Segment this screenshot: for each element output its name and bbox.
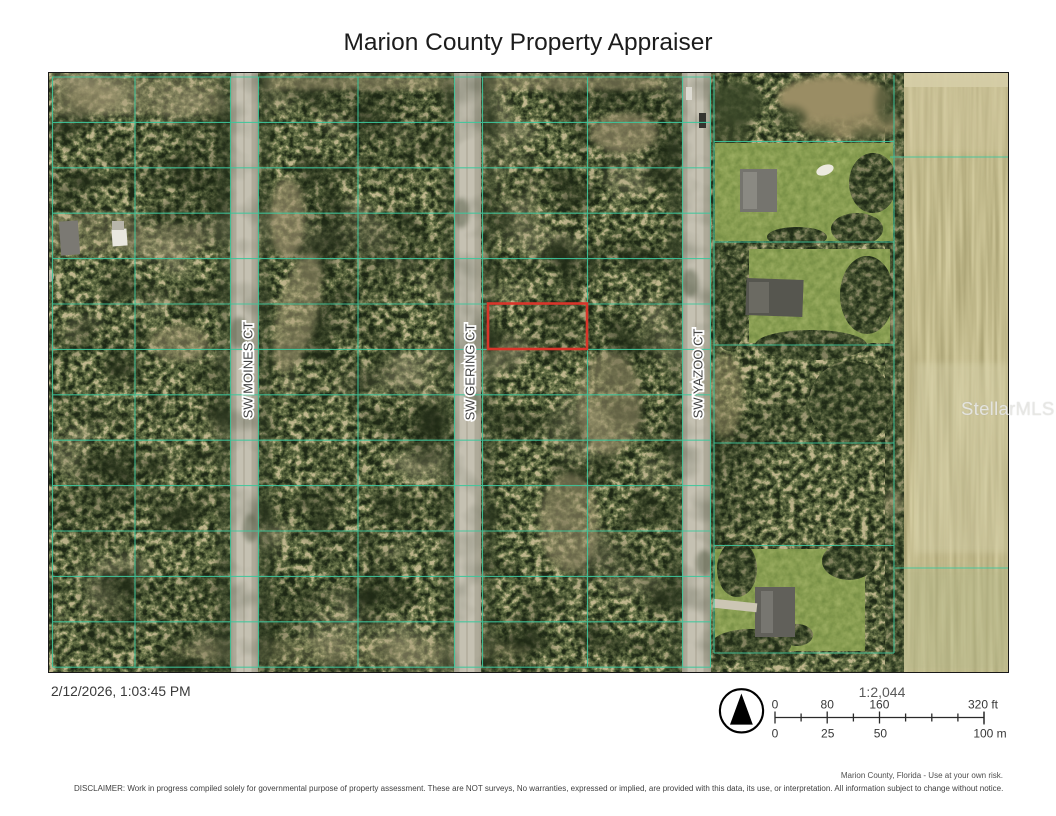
svg-text:80: 80 [821, 698, 835, 712]
svg-text:25: 25 [821, 727, 835, 741]
svg-text:320 ft: 320 ft [968, 698, 999, 712]
svg-text:SW YAZOO CT: SW YAZOO CT [691, 329, 706, 419]
svg-text:SW GERING CT: SW GERING CT [463, 324, 478, 421]
svg-text:160: 160 [869, 698, 889, 712]
svg-text:0: 0 [772, 727, 779, 741]
svg-text:SW MOINES CT: SW MOINES CT [241, 322, 256, 419]
svg-text:50: 50 [874, 727, 888, 741]
svg-text:0: 0 [772, 698, 779, 712]
svg-text:100 m: 100 m [973, 727, 1006, 741]
